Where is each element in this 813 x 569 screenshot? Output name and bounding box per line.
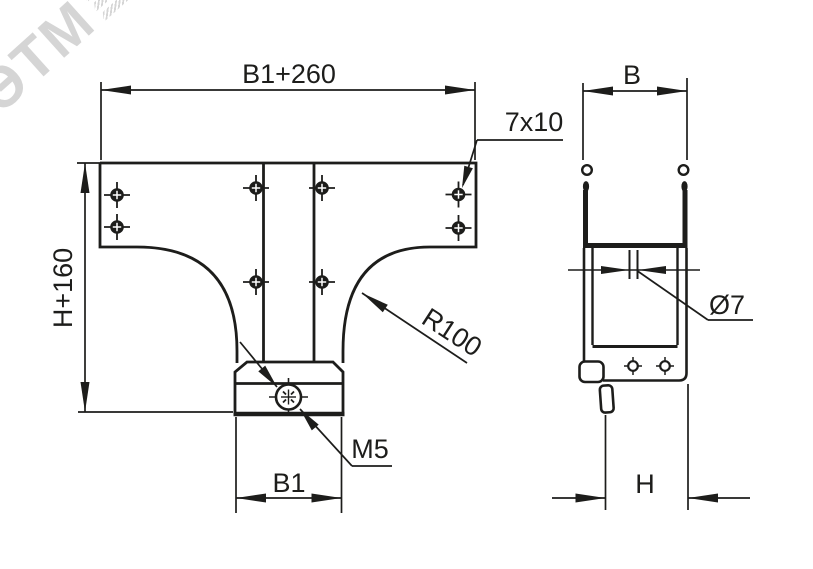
mounting-hole bbox=[243, 175, 269, 201]
slot-label: 7x10 bbox=[505, 107, 564, 137]
dim-label-b1: B1 bbox=[272, 468, 305, 498]
dim-left-height: H+160 bbox=[48, 163, 233, 412]
arrowhead bbox=[312, 494, 342, 503]
arrowhead bbox=[445, 86, 475, 95]
arrowhead bbox=[583, 87, 613, 96]
arrowhead bbox=[638, 266, 666, 274]
arrowhead bbox=[101, 86, 131, 95]
body-outline bbox=[100, 163, 476, 363]
dim-side-width: B bbox=[583, 60, 687, 160]
arrowhead bbox=[462, 166, 473, 188]
thread-label: M5 bbox=[351, 434, 389, 464]
dim-label-hplus160: H+160 bbox=[48, 248, 78, 328]
arrowhead bbox=[81, 382, 90, 412]
arrowhead bbox=[576, 494, 606, 503]
mounting-hole bbox=[243, 269, 269, 295]
mounting-hole bbox=[446, 182, 472, 208]
arrowhead bbox=[81, 163, 90, 193]
dim-side-height: H bbox=[552, 384, 750, 510]
hole-dia7 bbox=[630, 250, 638, 279]
bracket-hole bbox=[656, 357, 674, 375]
arrowhead bbox=[362, 293, 388, 312]
arrowhead bbox=[601, 266, 629, 274]
bracket-body bbox=[580, 248, 687, 413]
technical-drawing-canvas: ЭТМ bbox=[0, 0, 813, 569]
callout-radius-r100: R100 bbox=[362, 293, 487, 363]
drawing-svg: B1+260 H+160 7x10 R1 bbox=[0, 0, 813, 569]
bracket-hole bbox=[624, 357, 642, 375]
hole-dia-label: Ø7 bbox=[709, 290, 745, 320]
channel-profile bbox=[582, 165, 688, 246]
mounting-hole bbox=[104, 182, 130, 208]
dim-label-b1plus260: B1+260 bbox=[242, 59, 336, 89]
dim-label-h: H bbox=[635, 469, 655, 499]
hook-curl-left bbox=[582, 165, 592, 175]
front-view: B1+260 H+160 7x10 R1 bbox=[48, 59, 563, 513]
dim-bottom-width: B1 bbox=[236, 417, 342, 513]
fastening-clip bbox=[600, 385, 614, 413]
hook-curl-right bbox=[679, 165, 689, 175]
side-view: B Ø7 H bbox=[552, 60, 753, 510]
dim-label-b: B bbox=[623, 60, 641, 90]
dim-top-width: B1+260 bbox=[101, 59, 475, 160]
corner-tab bbox=[580, 362, 604, 383]
arrowhead bbox=[657, 87, 687, 96]
arrowhead bbox=[688, 494, 718, 503]
mounting-holes bbox=[104, 175, 472, 295]
mounting-hole bbox=[446, 215, 472, 241]
mounting-hole bbox=[104, 214, 130, 240]
arrowhead bbox=[236, 494, 266, 503]
callout-dia7: Ø7 bbox=[568, 266, 753, 320]
